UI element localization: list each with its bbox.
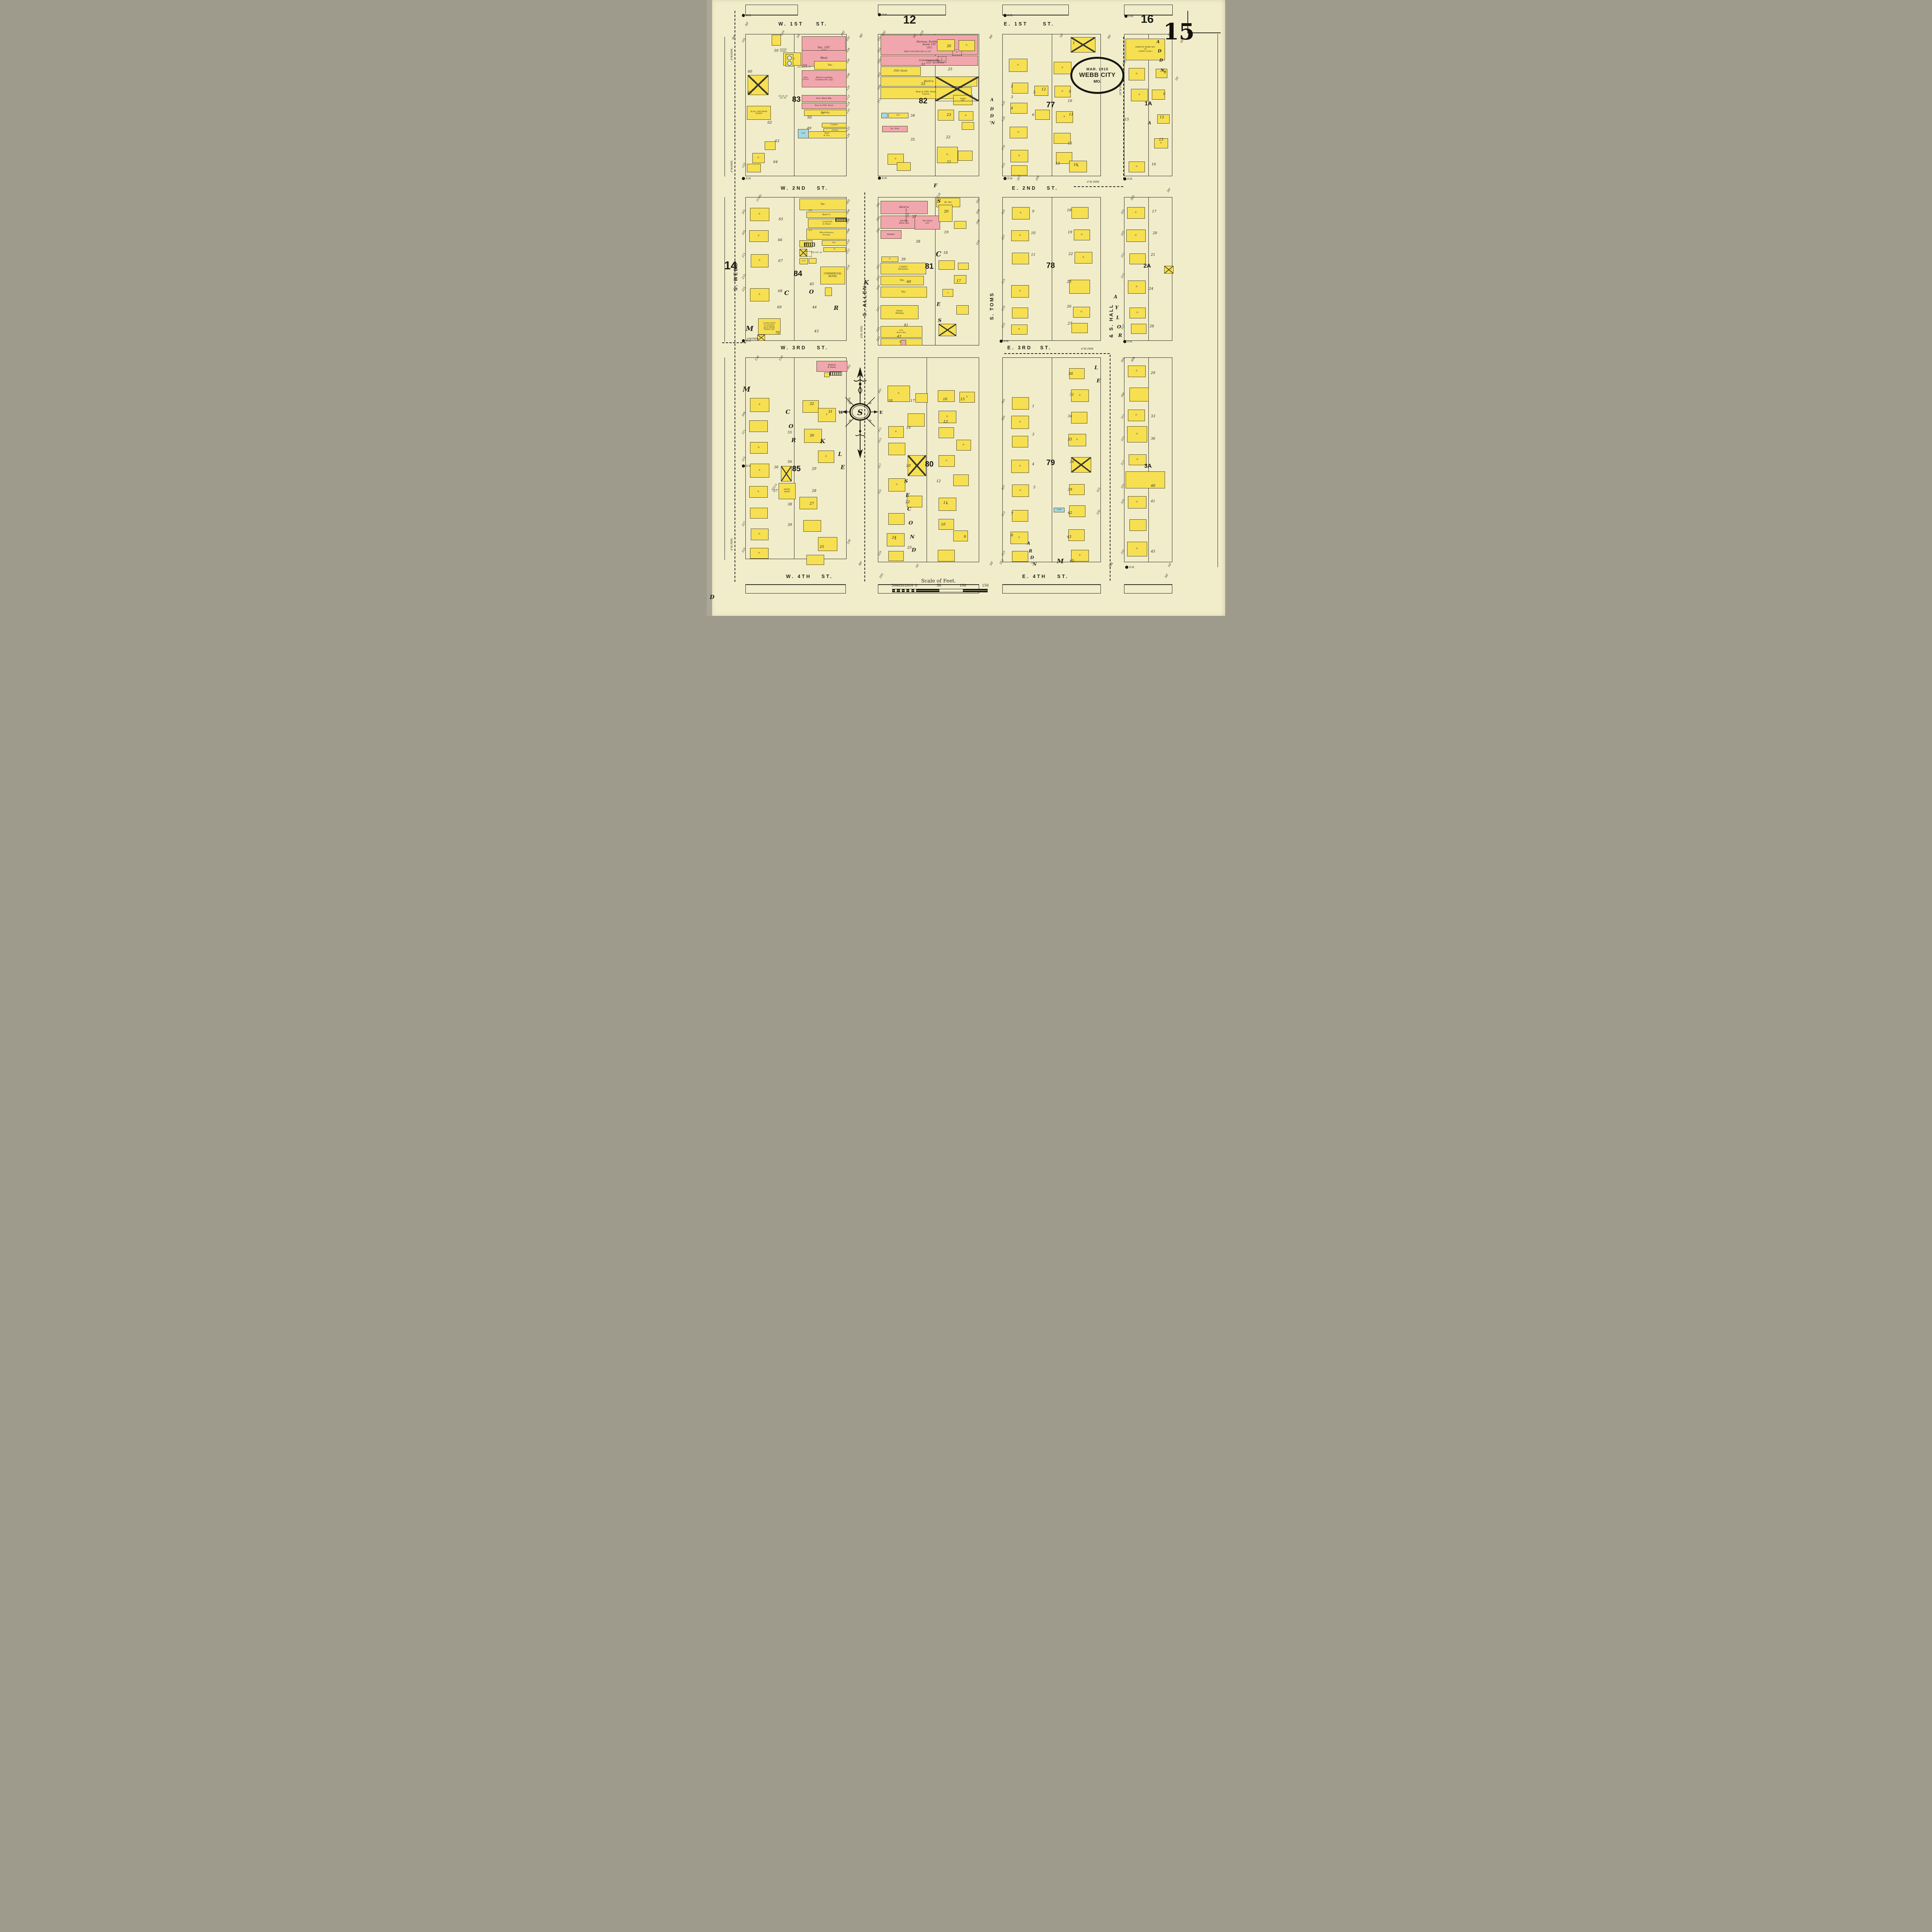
building: D. xyxy=(959,111,973,121)
lot-number: 9 xyxy=(1163,92,1165,96)
lot-number: 39 xyxy=(901,258,905,262)
street-label-suffix: ST. xyxy=(821,574,833,579)
lot-number: 66 xyxy=(778,238,782,242)
lot-number: 10 xyxy=(941,523,945,527)
hydrant-dot xyxy=(1003,177,1007,180)
block-number: 81 xyxy=(925,262,934,271)
lot-number: 41 xyxy=(1151,500,1155,503)
lot-number: 17 xyxy=(1152,210,1156,214)
lot-number: 5 xyxy=(1033,486,1036,490)
hydrant-dot xyxy=(1125,566,1128,569)
lot-number: 35 xyxy=(910,138,915,142)
building: Vac. xyxy=(799,199,847,210)
lot-number: 19 xyxy=(1068,231,1072,235)
lot-number: 34 xyxy=(1068,415,1072,418)
building: D. xyxy=(749,486,768,498)
addition-letter: C xyxy=(786,408,790,415)
addition-letter: O xyxy=(789,423,793,430)
building xyxy=(1069,280,1090,294)
hydrant-dot xyxy=(742,464,745,468)
water-tank xyxy=(787,61,792,66)
lot-number: 21 xyxy=(1151,253,1155,257)
margin-line xyxy=(724,37,725,177)
lot-number: 69 xyxy=(777,306,781,310)
addition-letter: L xyxy=(838,451,842,457)
addition-letter: D xyxy=(1158,49,1162,54)
building xyxy=(901,340,906,345)
addition-letter: S xyxy=(904,479,908,485)
building xyxy=(1012,551,1028,562)
building: D. xyxy=(1069,161,1087,172)
map-canvas: MAR. 1915 WEBB CITY MO. S W E xyxy=(707,0,1225,616)
lot-number: 9 xyxy=(1032,210,1034,214)
lot-number: 4 xyxy=(1011,107,1013,111)
annotation: WATER TANKS. xyxy=(780,49,787,53)
addition-letter: O xyxy=(1117,324,1121,330)
annotation: ENG 10 H.P. xyxy=(803,77,809,81)
stairs-icon xyxy=(804,243,815,247)
building xyxy=(749,420,768,432)
building: TIN SHOP 1ST. xyxy=(915,216,940,230)
building xyxy=(1035,110,1050,120)
building: D. xyxy=(1012,485,1029,497)
building: D. xyxy=(1011,230,1029,241)
street-label-suffix: ST. xyxy=(1047,185,1058,191)
lot-number: 61 xyxy=(748,91,752,95)
building xyxy=(888,443,905,455)
building: Rest'r't. xyxy=(806,212,847,218)
lot-number: 50. xyxy=(807,116,813,120)
annotation: (47) xyxy=(808,230,812,232)
dimension-label: 50' xyxy=(1166,187,1172,193)
partial-block xyxy=(745,584,846,594)
sub-block-number: 2A xyxy=(1143,263,1151,269)
annotation: 2 TON ICE MACH. 53 xyxy=(798,65,811,68)
scale-bar-segment xyxy=(916,589,940,592)
addition-letter: D xyxy=(1030,555,1034,560)
block-number: 78 xyxy=(1046,262,1055,270)
dimension-label: 90' xyxy=(988,34,994,40)
building xyxy=(765,141,776,150)
lot-number: 28 xyxy=(1150,325,1154,328)
lot-number: 70 xyxy=(775,331,779,335)
building: D. xyxy=(881,257,898,262)
building xyxy=(958,151,973,161)
building: CARPET WEAVING. xyxy=(881,263,926,274)
lot-number: 8 xyxy=(1011,534,1013,537)
addition-letter: A xyxy=(990,97,994,102)
lot-number: 19 xyxy=(944,231,948,235)
building: Belting & Hose. xyxy=(816,361,847,372)
scale-bar-segment xyxy=(939,589,964,592)
building: D. xyxy=(750,548,769,559)
building: D. xyxy=(1129,68,1145,80)
block-number: 80 xyxy=(925,460,934,469)
hydrant-dot xyxy=(878,13,881,16)
street-label: W. 1ST xyxy=(779,21,804,27)
building: D. xyxy=(1075,252,1092,264)
lot-number: 27 xyxy=(810,502,814,506)
hydrant-dot xyxy=(1123,340,1126,343)
building xyxy=(888,551,904,561)
building: D. xyxy=(749,230,769,242)
lot-number: 18 xyxy=(1067,209,1071,213)
building: D. xyxy=(1011,416,1029,429)
water-pipe-label: 6"W PIPE xyxy=(1087,180,1099,184)
building: 2ND. Hand. xyxy=(881,66,921,76)
street-label-vertical: S. TOMS xyxy=(989,292,995,320)
addition-letter: A xyxy=(1027,541,1031,546)
lot-number: 12 xyxy=(936,480,940,483)
building: Barber. xyxy=(881,230,901,239)
lot-number: 27 xyxy=(1068,322,1072,326)
building xyxy=(1131,324,1146,334)
building xyxy=(937,39,955,51)
lot-number: 23 xyxy=(1067,280,1071,284)
building: D. xyxy=(1129,454,1146,465)
building xyxy=(1071,207,1088,219)
water-pipe-line xyxy=(864,192,865,582)
title-date: MAR. 1915 xyxy=(1086,67,1108,71)
lot-number: 25 xyxy=(948,68,952,71)
building: D. xyxy=(1127,542,1147,556)
water-pipe-label: 6"W PIPE xyxy=(1081,347,1094,350)
building: Gro. Ware Rm. xyxy=(802,95,847,102)
lot-number: 13 xyxy=(943,420,947,424)
building xyxy=(824,372,830,377)
partial-block xyxy=(1002,584,1101,594)
lot-number: 18 xyxy=(888,399,892,403)
lot-number: 12 xyxy=(1041,88,1046,92)
street-label-suffix: ST. xyxy=(1057,574,1069,579)
dimension-label: 80' xyxy=(858,561,863,566)
lot-number: 30 xyxy=(810,434,814,438)
building xyxy=(939,260,955,270)
hydrant-dot xyxy=(1124,15,1128,18)
addition-letter: F xyxy=(934,183,937,189)
hydrant-label: D.H. xyxy=(746,339,752,342)
block-number: 84 xyxy=(794,270,802,279)
building: PAINT. SHOP. xyxy=(779,483,796,499)
lot-line xyxy=(794,358,794,559)
building: D. xyxy=(1131,89,1148,101)
lot-number: 36 xyxy=(1151,437,1155,441)
building: D. xyxy=(750,398,769,412)
street-label-suffix: ST. xyxy=(817,185,828,191)
addition-letter: D xyxy=(710,594,714,600)
dimension-label: 50' xyxy=(1164,573,1169,579)
street-label-vertical: & S. HALL xyxy=(1109,304,1114,338)
lot-number: 20 xyxy=(944,210,948,214)
building xyxy=(956,305,969,315)
lot-number: 25 xyxy=(820,545,824,549)
addition-letter: R xyxy=(1118,333,1122,338)
hydrant-label: D.H. xyxy=(746,464,752,468)
street-label-vertical: S. WEBB xyxy=(733,262,738,291)
building: D. xyxy=(752,153,765,163)
building xyxy=(1071,323,1088,333)
addition-letter: R xyxy=(834,304,838,311)
annotation: 7 TON ICE MACH. & ELEC. MOTOR BAS. xyxy=(926,60,945,64)
addition-letter: K xyxy=(820,438,825,445)
water-pipe-line xyxy=(735,11,735,582)
building: D. xyxy=(1054,86,1071,97)
building: Vac. xyxy=(881,276,924,285)
dimension-label: 80' xyxy=(859,33,864,39)
building: D. xyxy=(751,529,769,540)
addition-letter: C xyxy=(936,250,941,259)
lot-number: 59 xyxy=(774,49,778,53)
adjacent-sheet-number: 12 xyxy=(903,14,916,27)
building: D. xyxy=(1073,307,1090,318)
addition-letter: 'N xyxy=(990,121,995,126)
building: D. xyxy=(1128,281,1146,294)
lot-number: 40 xyxy=(1151,484,1155,488)
hydrant-dot xyxy=(878,177,881,180)
building: D. xyxy=(1010,127,1027,138)
adjacent-sheet-number: 16 xyxy=(1141,13,1153,26)
page-number: 15 xyxy=(1163,19,1195,45)
building: PRIVATE (29) xyxy=(935,77,979,101)
addition-letter: N. xyxy=(1160,68,1165,73)
lot-number: 33 xyxy=(1151,415,1155,418)
building: Vac. Vend. xyxy=(882,126,908,132)
addition-letter: E xyxy=(906,493,910,498)
building: Vac. xyxy=(888,113,908,118)
lot-number: 45 xyxy=(1070,559,1074,563)
sheet-wrapper: MAR. 1915 WEBB CITY MO. S W E xyxy=(707,0,1225,616)
addition-letter: M xyxy=(1057,558,1064,565)
building xyxy=(938,110,954,121)
building: Vac. xyxy=(822,240,847,246)
water-pipe-line xyxy=(1123,37,1124,180)
lot-line xyxy=(794,197,794,340)
lot-number: 19 xyxy=(906,426,910,430)
building xyxy=(1012,253,1029,264)
building xyxy=(888,513,905,525)
building xyxy=(939,324,956,336)
building xyxy=(908,413,925,427)
building: Cobbler xyxy=(822,123,847,128)
lot-number: 16 xyxy=(1073,163,1078,167)
lot-number: 60 xyxy=(748,70,752,74)
lot-number: 43 xyxy=(1067,535,1071,539)
building: Bl.Sm. 2ND HAND GOODS xyxy=(747,106,771,120)
lot-number: 17 xyxy=(956,279,961,283)
hydrant-label: D.H. xyxy=(1007,177,1013,180)
title-oval: MAR. 1915 WEBB CITY MO. xyxy=(1070,57,1124,94)
lot-number: 22 xyxy=(905,500,910,504)
addition-letter: C xyxy=(784,289,789,297)
building: TOWER xyxy=(1054,508,1065,512)
building xyxy=(953,474,969,486)
building: D. xyxy=(818,451,834,463)
lot-number: 7 xyxy=(1011,512,1013,516)
lot-number: 6 xyxy=(1032,113,1034,117)
lot-number: 9 xyxy=(1069,90,1071,94)
building: D. xyxy=(750,288,769,301)
house-number: 330 xyxy=(846,539,851,545)
hydrant-label: D.H. xyxy=(882,13,888,16)
scale-tick: 10 xyxy=(909,584,913,588)
addition-letter: O xyxy=(908,520,913,526)
street-label: E. 2ND xyxy=(1012,185,1037,191)
addition-letter: E xyxy=(937,302,940,308)
lot-number: 36 xyxy=(774,466,778,469)
building xyxy=(1011,165,1027,175)
building xyxy=(1164,266,1173,274)
lot-number: 22 xyxy=(946,136,950,139)
dimension-label: 16' xyxy=(915,563,920,569)
water-pipe-label: 4'W. PIPE. xyxy=(860,325,863,338)
building: D. xyxy=(1128,496,1146,509)
addition-letter: R xyxy=(1029,549,1032,554)
lot-number: 34 xyxy=(910,114,915,118)
compass-monogram: S xyxy=(857,408,863,417)
building xyxy=(1129,519,1146,531)
lot-number: 18 xyxy=(943,251,947,255)
water-pipe-label: 4"W.PIPE. xyxy=(730,48,733,61)
building xyxy=(1126,471,1165,488)
building xyxy=(1071,412,1087,423)
hydrant-label: D.H. xyxy=(1127,177,1133,180)
hydrant-label: D.H. xyxy=(1128,15,1134,18)
street-label-suffix: ST. xyxy=(1040,345,1052,350)
lot-number: 55 xyxy=(787,431,792,435)
hydrant-label: D.H. xyxy=(746,177,752,180)
building: D. xyxy=(1126,230,1146,242)
building: Variety. xyxy=(804,110,847,116)
building xyxy=(803,520,821,532)
lot-number: 1 xyxy=(1073,41,1075,45)
building xyxy=(747,164,761,172)
water-pipe-label: 4"W PIPE. xyxy=(730,537,733,551)
building xyxy=(799,497,817,509)
building: D. xyxy=(1129,162,1145,172)
addition-letter: D xyxy=(912,548,916,553)
water-tank xyxy=(787,56,792,60)
lot-number: 39 xyxy=(1068,488,1072,492)
lot-number: 13 xyxy=(1055,162,1060,166)
building: D. xyxy=(1010,150,1028,162)
addition-letter: O xyxy=(809,289,814,295)
lot-number: 11 xyxy=(1031,253,1035,257)
dimension-label: 90' xyxy=(1107,34,1112,40)
building: D. xyxy=(959,40,975,51)
building xyxy=(1012,436,1028,447)
addition-letter: S xyxy=(937,199,940,204)
paper-edge xyxy=(707,0,712,616)
building: Hard'w. xyxy=(881,201,928,214)
building: D. xyxy=(887,533,905,546)
building xyxy=(825,287,832,296)
lot-number: 10 xyxy=(1031,231,1035,235)
building xyxy=(1129,388,1149,401)
lot-number: 38 xyxy=(916,240,920,244)
lot-number: 12 xyxy=(1160,116,1164,119)
annotation: ROOMING HO. 2ND. xyxy=(906,208,910,222)
hydrant-dot xyxy=(742,14,745,17)
lot-number: 45 xyxy=(810,282,814,286)
building xyxy=(1071,457,1091,473)
building: Gro. Ware Rm. xyxy=(881,326,922,338)
lot-number: 26 xyxy=(1067,305,1071,309)
lot-number: 39 xyxy=(787,523,792,527)
lot-number: 21 xyxy=(947,160,951,164)
lot-number: 31 xyxy=(1070,393,1074,397)
building: D. xyxy=(750,442,768,454)
lot-number: 31 xyxy=(828,410,832,414)
lot-number: 17 xyxy=(910,399,915,403)
stairs-icon xyxy=(835,218,847,222)
hydrant-dot xyxy=(1123,177,1126,180)
lot-number: 67 xyxy=(778,259,782,263)
block-number: 85 xyxy=(792,465,801,474)
lot-number: 62 xyxy=(767,121,772,125)
building xyxy=(806,555,824,565)
building xyxy=(1012,83,1028,94)
hydrant-label: D.H. xyxy=(1003,340,1009,343)
sub-block-number: 3A xyxy=(1144,463,1151,469)
addition-letter: C xyxy=(907,507,911,512)
block-number: 79 xyxy=(1046,459,1055,468)
street-label: E. 1ST xyxy=(1004,21,1028,27)
addition-letter: Y xyxy=(1115,305,1119,310)
margin-line xyxy=(1218,34,1218,567)
addition-letter: N xyxy=(910,534,915,540)
lot-number: 26 xyxy=(947,44,951,48)
street-label-suffix: ST. xyxy=(817,345,828,350)
lot-number: 3 xyxy=(1011,95,1013,99)
lot-number: 9 xyxy=(964,535,966,539)
annotation: (51) xyxy=(821,113,824,115)
addition-letter: A xyxy=(1148,121,1151,126)
lot-number: 42 xyxy=(897,335,901,339)
lot-number: 10 xyxy=(1068,99,1072,103)
street-label: E. 4TH xyxy=(1022,574,1047,579)
street-label: W. 4TH xyxy=(786,574,811,579)
building: New & 2ND. Hand. xyxy=(802,103,847,109)
hydrant-label: D.H. xyxy=(746,14,752,17)
building xyxy=(939,427,954,438)
street-label: E. 3RD xyxy=(1007,345,1032,350)
building: D. xyxy=(1054,62,1071,74)
street-label-suffix: ST. xyxy=(816,21,828,27)
lot-number: 20 xyxy=(1153,231,1157,235)
lot-number: 33 xyxy=(921,82,925,86)
building: COMMERCIAL HOTEL xyxy=(820,267,845,284)
building: D. xyxy=(1128,366,1146,377)
block-number: 77 xyxy=(1046,101,1055,110)
hydrant-dot xyxy=(1003,14,1007,17)
street-label: W. 3RD xyxy=(781,345,806,350)
building: D. xyxy=(888,426,904,438)
lot-number: 25 xyxy=(907,546,912,550)
addition-letter: 'N xyxy=(1031,562,1036,567)
water-pipe-line xyxy=(1074,186,1123,187)
lot-number: 49 xyxy=(807,127,811,131)
addition-letter: D xyxy=(990,114,994,119)
lot-number: 1 xyxy=(1032,405,1034,408)
building: D. xyxy=(1012,207,1030,219)
annotation: (48) xyxy=(808,210,812,212)
lot-number: 2 xyxy=(1011,85,1013,88)
scale-bar-title: Scale of Feet. xyxy=(921,578,956,584)
addition-letter: L xyxy=(1094,365,1098,371)
annotation: IRON COLUMNS BAS. & 1ST. xyxy=(904,51,931,53)
building xyxy=(958,263,969,270)
hydrant-label: D.H. xyxy=(1129,566,1135,569)
